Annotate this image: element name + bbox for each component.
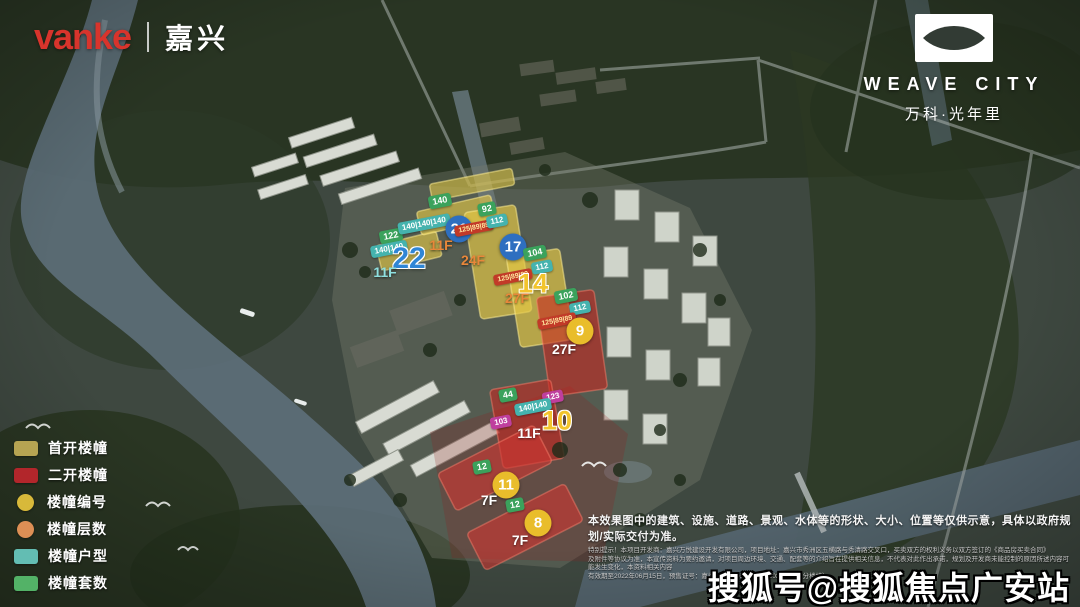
legend-label: 楼幢编号 xyxy=(47,492,107,512)
map-marker-tag-teal-112: 112 xyxy=(486,213,509,229)
legend-item-unit-count: 楼幢套数 xyxy=(14,573,108,593)
disclaimer-main-line: 本效果图中的建筑、设施、道路、景观、水体等的形状、大小、位置等仅供示意，具体以政… xyxy=(588,512,1074,544)
watermark-text: 搜狐号@搜狐焦点广安站 xyxy=(708,563,1070,607)
map-marker-tag-magenta-103: 103 xyxy=(489,414,512,430)
legend-label: 二开楼幢 xyxy=(48,465,108,485)
map-marker-tag-green-104: 104 xyxy=(522,244,547,261)
legend-swatch-unit-count xyxy=(14,576,38,591)
map-marker-num-text-yellow-10: 10 xyxy=(542,408,572,435)
legend-label: 楼幢层数 xyxy=(47,519,107,539)
legend-label: 首开楼幢 xyxy=(48,438,108,458)
map-marker-floors-orange-27F: 27F xyxy=(505,291,529,305)
map-marker-floors-teal-11F: 11F xyxy=(373,265,396,279)
map-marker-floors-white-7F: 7F xyxy=(481,493,497,507)
map-marker-floors-white-7F: 7F xyxy=(512,533,528,547)
map-marker-tag-green-12: 12 xyxy=(505,497,525,513)
map-legend: 首开楼幢 二开楼幢 楼幢编号 楼幢层数 楼幢户型 楼幢套数 xyxy=(14,438,108,593)
map-marker-num-circle-blue-17: 17 xyxy=(500,234,527,261)
legend-swatch-floors xyxy=(17,521,34,538)
legend-item-building-number: 楼幢编号 xyxy=(14,492,108,512)
legend-swatch-building-number xyxy=(17,494,34,511)
legend-label: 楼幢套数 xyxy=(48,573,108,593)
map-marker-num-circle-yellow-8: 8 xyxy=(525,510,552,537)
map-marker-tag-green-44: 44 xyxy=(498,387,518,403)
legend-swatch-second-phase xyxy=(14,468,38,483)
legend-label: 楼幢户型 xyxy=(48,546,108,566)
map-marker-tag-teal-140|140|140: 140|140|140 xyxy=(397,213,451,235)
map-marker-floors-orange-24F: 24F xyxy=(461,253,485,267)
legend-swatch-unit-type xyxy=(14,549,38,564)
map-marker-floors-white-11F: 11F xyxy=(517,426,540,440)
legend-item-first-phase: 首开楼幢 xyxy=(14,438,108,458)
map-marker-tag-green-140: 140 xyxy=(427,192,452,209)
map-marker-num-text-blue-22: 22 xyxy=(392,244,425,274)
map-marker-tag-green-12: 12 xyxy=(472,459,492,475)
aerial-rendering-page: vanke 嘉兴 WEAVE CITY 万科·光年里 122140|140221… xyxy=(0,0,1080,607)
legend-item-floors: 楼幢层数 xyxy=(14,519,108,539)
legend-item-unit-type: 楼幢户型 xyxy=(14,546,108,566)
disclaimer-small-line: 特别提示！本项目开发商：嘉兴万悦建设开发有限公司，项目地址：嘉兴市秀洲区五横路与… xyxy=(588,547,1074,556)
map-marker-floors-orange-11F: 11F xyxy=(429,238,452,252)
map-marker-floors-white-27F: 27F xyxy=(552,342,576,356)
legend-swatch-first-phase xyxy=(14,441,38,456)
legend-item-second-phase: 二开楼幢 xyxy=(14,465,108,485)
